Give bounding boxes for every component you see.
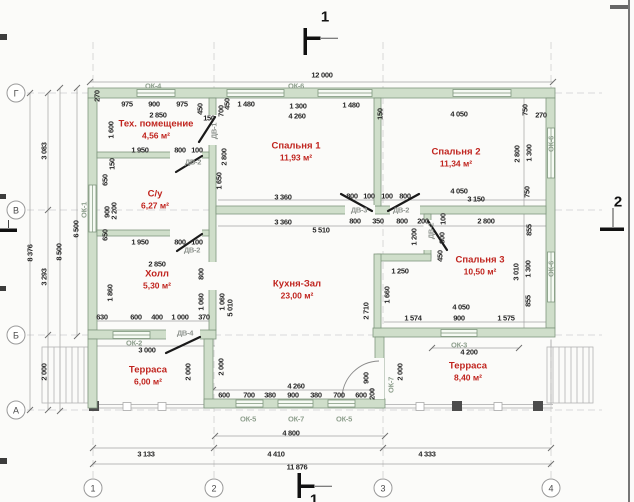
dimension-label: 1 300 [289, 102, 306, 110]
window-label: ОК-6 [547, 261, 555, 277]
room-area: 6,00 м² [129, 377, 167, 388]
dimension-label: 100 [439, 213, 447, 225]
dimension-label: 5 010 [226, 299, 234, 316]
dimension-label: 2 800 [220, 148, 228, 165]
room-name: С/у [141, 188, 169, 200]
section-mark-top: 1 [321, 9, 329, 26]
room-label: Спальня 211,34 м² [432, 146, 481, 169]
room-label: Холл5,30 м² [143, 268, 171, 291]
dimension-label: 8 500 [55, 243, 63, 260]
room-label: Кухня-Зал23,00 м² [273, 278, 321, 301]
window-label: ОК-5 [336, 415, 352, 423]
dimension-label: 380 [264, 391, 276, 399]
dimension-label: 2 710 [362, 302, 370, 319]
dimension-label: 600 [355, 391, 367, 399]
door-label: ДВ-2 [184, 246, 200, 254]
dimension-label: 700 [243, 391, 255, 399]
axis-marker: А [7, 401, 26, 420]
room-name: Холл [143, 268, 171, 280]
dimension-label: 5 510 [312, 226, 329, 234]
room-area: 5,30 м² [143, 281, 171, 292]
dimension-label: 4 050 [452, 303, 469, 311]
dimension-label: 1 480 [237, 100, 254, 108]
room-area: 4,56 м² [119, 131, 194, 142]
dimension-label: 800 [174, 146, 186, 154]
dimension-label: 8 376 [26, 244, 34, 261]
dimension-label: 2 000 [40, 363, 48, 380]
dimension-label: 150 [376, 108, 384, 120]
dimension-label: 800 [349, 217, 361, 225]
dimension-label: 2 800 [513, 145, 521, 162]
door-label: ДВ-1 [210, 123, 218, 139]
dimension-label: 800 [399, 192, 411, 200]
axis-marker: 4 [542, 479, 561, 498]
dimension-label: 3 000 [138, 346, 155, 354]
dimension-label: 370 [198, 313, 210, 321]
room-label: Тех. помещение4,56 м² [119, 118, 194, 141]
room-name: Спальня 1 [272, 140, 321, 152]
dimension-label: 4 333 [418, 450, 435, 458]
room-area: 11,93 м² [272, 153, 321, 164]
room-name: Кухня-Зал [273, 278, 321, 290]
door-label: ДВ-2 [427, 223, 435, 239]
dimension-label: 750 [521, 104, 529, 116]
section-mark-bottom: 1 [310, 492, 318, 502]
dimension-label: 4 050 [450, 110, 467, 118]
dimension-label: 600 [218, 391, 230, 399]
dimension-label: 12 000 [311, 71, 332, 79]
room-name: Терраса [129, 364, 167, 376]
dimension-label: 650 [101, 174, 109, 186]
dimension-label: 600 [130, 313, 142, 321]
door-label: ДВ-4 [177, 329, 193, 337]
dimension-label: 3 293 [40, 268, 48, 285]
dimension-label: 700 [333, 391, 345, 399]
dimension-label: 900 [453, 314, 465, 322]
dimension-label: 1 060 [197, 293, 205, 310]
axis-marker: Г [7, 84, 26, 103]
dimension-label: 270 [93, 90, 101, 102]
dimension-label: 2 850 [148, 260, 165, 268]
door-label: ДВ-3 [351, 206, 367, 214]
floor-plan: 12 0009759009751 4801 3001 4804 0502 850… [0, 0, 634, 502]
dimension-label: 400 [151, 313, 163, 321]
dimension-label: 380 [310, 391, 322, 399]
dimension-label: 1 200 [410, 228, 418, 245]
dimension-label: 1 950 [131, 146, 148, 154]
room-label: Терраса6,00 м² [129, 364, 167, 387]
dimension-label: 450 [436, 250, 444, 262]
axis-marker: В [7, 201, 26, 220]
dimension-label: 100 [381, 192, 393, 200]
window-label: ОК-7 [387, 377, 395, 393]
dimension-label: 350 [372, 217, 384, 225]
dimension-label: 800 [396, 217, 408, 225]
dimension-label: 270 [535, 111, 547, 119]
room-label: Терраса8,40 м² [449, 360, 487, 383]
dimension-label: 3 010 [512, 263, 520, 280]
dimension-label: 855 [524, 295, 532, 307]
dimension-label: 3 360 [274, 193, 291, 201]
dimension-label: 900 [287, 391, 299, 399]
door-label: ДВ-2 [185, 158, 201, 166]
dimension-label: 150 [203, 114, 215, 122]
dimension-label: 1 575 [497, 314, 514, 322]
dimension-label: 2 000 [396, 363, 404, 380]
dimension-label: 1 950 [131, 238, 148, 246]
window-label: ОК-6 [288, 82, 304, 90]
dimension-label: 800 [346, 192, 358, 200]
dimension-label: 1 600 [107, 121, 115, 138]
dimension-label: 4 260 [287, 382, 304, 390]
dimension-label: 800 [438, 232, 446, 244]
room-area: 23,00 м² [273, 291, 321, 302]
room-name: Тех. помещение [119, 118, 194, 130]
dimension-label: 2 800 [477, 217, 494, 225]
dimension-label: 2 000 [217, 358, 225, 375]
window-label: ОК-6 [547, 136, 555, 152]
dimension-label: 1 000 [171, 313, 188, 321]
dimension-label: 750 [523, 186, 531, 198]
dimension-label: 800 [197, 268, 205, 280]
axis-marker: Б [7, 326, 26, 345]
dimension-label: 900 [362, 372, 370, 384]
dimension-label: 630 [96, 313, 108, 321]
dimension-label: 3 360 [274, 218, 291, 226]
door-label: ДВ-2 [393, 206, 409, 214]
dimension-label: 4 200 [460, 348, 477, 356]
room-label: Спальня 111,93 м² [272, 140, 321, 163]
dimension-label: 1 250 [391, 267, 408, 275]
room-area: 8,40 м² [449, 373, 487, 384]
dimension-label: 200 [368, 388, 376, 400]
room-label: С/у6,27 м² [141, 188, 169, 211]
dimension-label: 1 860 [106, 284, 114, 301]
window-label: ОК-7 [288, 415, 304, 423]
dimension-label: 3 133 [137, 450, 154, 458]
dimension-label: 4 800 [282, 429, 299, 437]
room-area: 11,34 м² [432, 159, 481, 170]
room-label: Спальня 310,50 м² [456, 254, 505, 277]
dimension-label: 2 000 [184, 363, 192, 380]
room-area: 10,50 м² [456, 267, 505, 278]
room-name: Терраса [449, 360, 487, 372]
axis-marker: 3 [374, 479, 393, 498]
dimension-label: 100 [191, 146, 203, 154]
dimension-label: 450 [223, 98, 231, 110]
dimension-label: 3 083 [40, 142, 48, 159]
dimension-label: 650 [101, 229, 109, 241]
window-label: ОК-4 [145, 82, 161, 90]
section-mark-right: 2 [614, 194, 622, 211]
window-label: ОК-3 [451, 341, 467, 349]
dimension-label: 4 410 [267, 450, 284, 458]
dimension-label: 150 [108, 158, 116, 170]
room-name: Спальня 3 [456, 254, 505, 266]
dimension-label: 900 [148, 100, 160, 108]
room-area: 6,27 м² [141, 201, 169, 212]
dimension-label: 1 650 [215, 172, 223, 189]
dimension-label: 1 574 [404, 314, 421, 322]
dimension-label: 100 [363, 192, 375, 200]
window-label: ОК-5 [240, 415, 256, 423]
axis-marker: 2 [205, 479, 224, 498]
dimension-label: 3 150 [467, 195, 484, 203]
dimension-label: 975 [121, 100, 133, 108]
dimension-label: 1 660 [383, 286, 391, 303]
dimension-label: 975 [176, 100, 188, 108]
dimension-label: 4 260 [288, 112, 305, 120]
window-label: ОК-1 [80, 202, 88, 218]
axis-marker: 1 [84, 479, 103, 498]
dimension-label: 2 200 [110, 202, 118, 219]
dimension-label: 1 300 [525, 144, 533, 161]
dimension-label: 4 050 [450, 187, 467, 195]
dimension-label: 1 480 [342, 101, 359, 109]
window-label: ОК-2 [126, 339, 142, 347]
label-layer: 12 0009759009751 4801 3001 4804 0502 850… [0, 0, 634, 502]
dimension-label: 855 [525, 224, 533, 236]
dimension-label: 6 500 [72, 220, 80, 237]
room-name: Спальня 2 [432, 146, 481, 158]
dimension-label: 1 300 [524, 260, 532, 277]
dimension-label: 11 876 [287, 463, 308, 471]
